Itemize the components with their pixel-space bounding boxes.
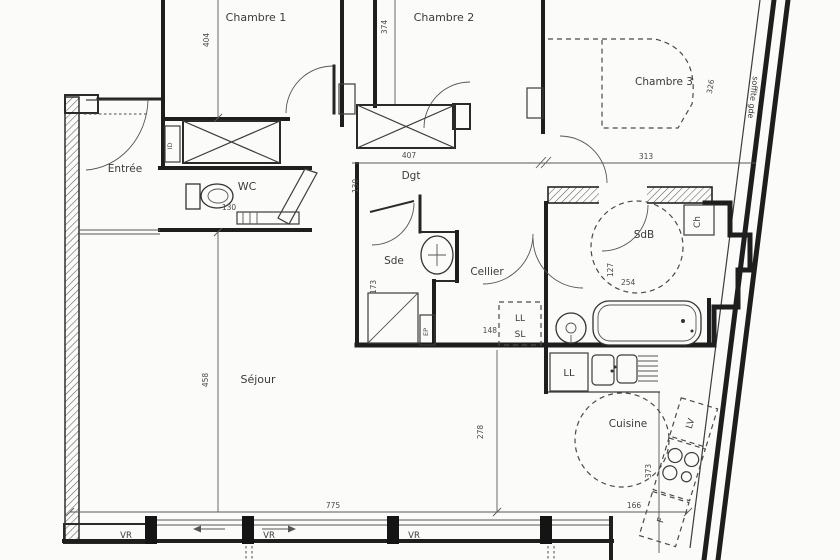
kitchen-washer-label: LL [563, 368, 575, 379]
dim-cuisine-width: 166 [627, 501, 642, 510]
window-post-1 [145, 516, 157, 544]
room-label-cuisine: Cuisine [609, 418, 647, 430]
room-label-cellier: Cellier [470, 266, 504, 278]
dim-chambre2-depth: 374 [380, 20, 389, 35]
dim-sejour-mid-depth: 278 [476, 425, 485, 440]
party-wall-left [65, 97, 79, 543]
floor-plan-drawing: LV F Entrée Chambre 1 Chambre 2 Chambre … [0, 0, 840, 560]
rainwater-pipe-label: EP [422, 328, 430, 336]
sink-tap-2 [614, 366, 617, 369]
dim-cuisine-depth: 373 [644, 464, 653, 479]
dim-sdb-width: 254 [621, 278, 636, 287]
bathtub [593, 301, 701, 345]
bathtub-tap [691, 330, 694, 333]
room-label-sdb: SdB [634, 229, 655, 241]
room-label-sejour: Séjour [240, 373, 276, 386]
entry-duct-label: ID [166, 143, 174, 150]
window-post-3 [387, 516, 399, 544]
dim-dgt-length: 407 [402, 151, 417, 160]
dim-sejour-width: 775 [326, 501, 341, 510]
washer-label: LL [515, 314, 525, 324]
dim-wc-width: 130 [222, 203, 237, 212]
dim-dgt-width: 130 [351, 179, 360, 194]
shutter-label-1: VR [120, 531, 132, 541]
bathtub-drain [681, 319, 685, 323]
dim-sdb-depth: 127 [606, 263, 615, 278]
room-label-entree: Entrée [108, 163, 142, 175]
window-post-4 [540, 516, 552, 544]
toilet-tank [186, 184, 200, 209]
dim-cellier-width: 148 [483, 326, 498, 335]
room-label-chambre3: Chambre 3 [635, 76, 693, 88]
dim-chambre1-depth: 404 [202, 33, 211, 48]
dryer-label: SL [515, 330, 526, 340]
dim-sde-depth: 173 [369, 280, 378, 295]
room-label-dgt: Dgt [402, 170, 421, 182]
dim-chambre3-width: 313 [639, 152, 654, 161]
room-label-chambre1: Chambre 1 [226, 11, 287, 24]
sink-tap-1 [611, 370, 614, 373]
room-label-wc: WC [238, 180, 257, 193]
shutter-label-2: VR [263, 531, 275, 541]
room-label-chambre2: Chambre 2 [414, 11, 475, 24]
window-post-2 [242, 516, 254, 544]
boiler-label: Ch [693, 216, 703, 228]
floor-plan-page: LV F Entrée Chambre 1 Chambre 2 Chambre … [0, 0, 840, 560]
room-label-sde: Sde [384, 255, 404, 267]
dim-sejour-depth: 458 [201, 373, 210, 388]
shutter-label-3: VR [408, 531, 420, 541]
